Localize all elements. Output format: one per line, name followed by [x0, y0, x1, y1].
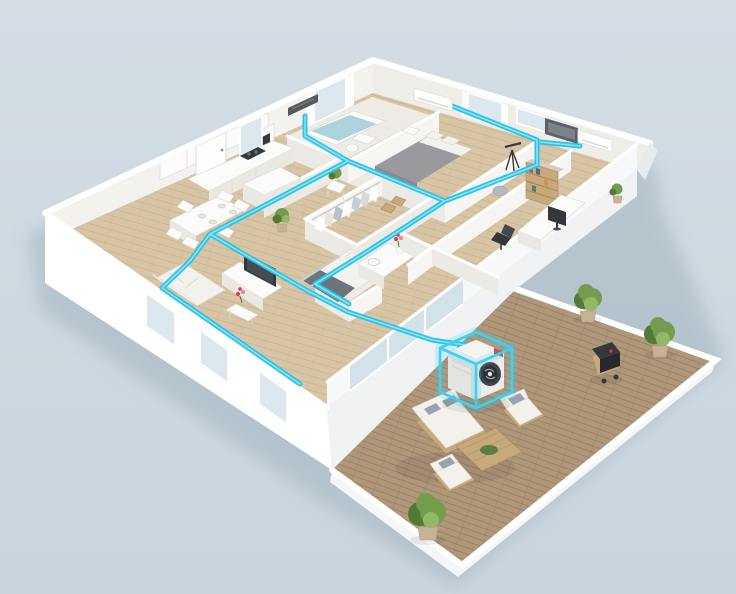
floorplan-svg	[0, 0, 736, 594]
grill-knob	[609, 349, 612, 352]
outdoor-ac-unit	[440, 332, 512, 413]
pouf	[493, 186, 507, 196]
floorplan-render	[0, 0, 736, 594]
table-tray	[480, 445, 498, 455]
toilet	[346, 144, 358, 152]
sink	[368, 259, 380, 266]
